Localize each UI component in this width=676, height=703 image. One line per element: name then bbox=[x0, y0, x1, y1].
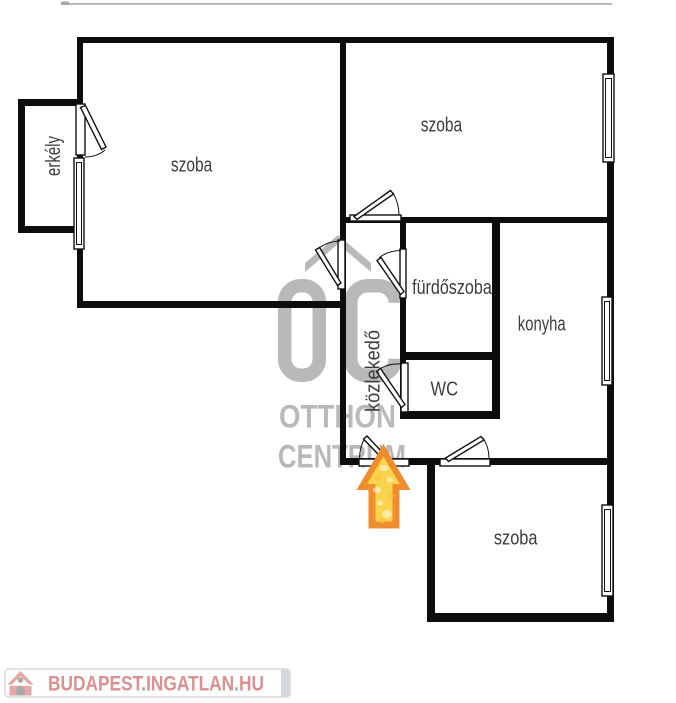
svg-text:szoba: szoba bbox=[494, 526, 538, 549]
svg-text:WC: WC bbox=[431, 378, 459, 401]
svg-text:közlekedő: közlekedő bbox=[362, 330, 385, 412]
svg-text:erkély: erkély bbox=[42, 135, 65, 176]
svg-text:BUDAPEST.INGATLAN.HU: BUDAPEST.INGATLAN.HU bbox=[48, 673, 264, 696]
svg-text:szoba: szoba bbox=[171, 154, 213, 177]
svg-text:konyha: konyha bbox=[518, 313, 566, 336]
svg-text:fürdőszoba: fürdőszoba bbox=[412, 276, 492, 299]
svg-text:szoba: szoba bbox=[421, 114, 463, 137]
